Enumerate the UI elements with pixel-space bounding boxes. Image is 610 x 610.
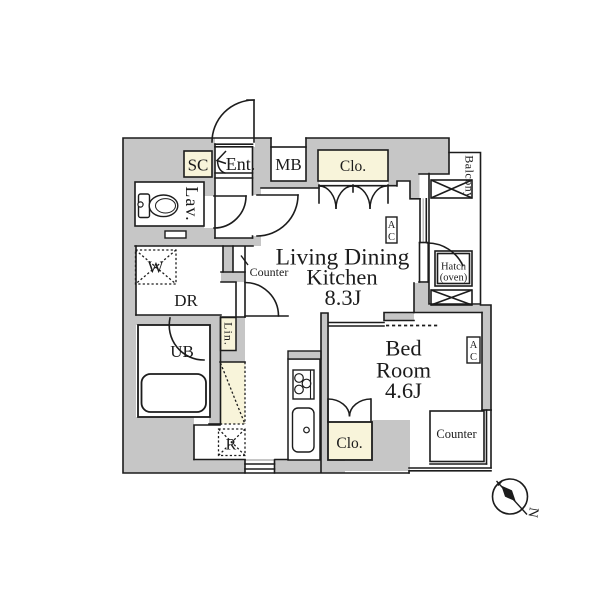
svg-text:Counter: Counter (250, 265, 289, 279)
svg-text:Lin.: Lin. (222, 322, 236, 346)
svg-text:UB: UB (170, 342, 194, 361)
svg-text:Lav.: Lav. (182, 186, 202, 221)
svg-text:SC: SC (188, 156, 209, 175)
svg-text:A: A (470, 340, 478, 351)
svg-text:8.3J: 8.3J (325, 285, 362, 310)
svg-text:C: C (470, 352, 477, 363)
svg-text:Counter: Counter (436, 427, 477, 441)
svg-text:Clo.: Clo. (340, 158, 366, 175)
svg-text:C: C (388, 232, 395, 243)
svg-text:Hatch: Hatch (441, 262, 467, 273)
svg-text:W: W (147, 258, 164, 277)
svg-text:R: R (226, 437, 237, 454)
svg-text:Ent.: Ent. (226, 154, 256, 174)
svg-text:(oven): (oven) (440, 273, 468, 284)
svg-text:A: A (388, 220, 396, 231)
svg-text:4.6J: 4.6J (385, 378, 422, 403)
svg-text:DR: DR (174, 291, 198, 310)
svg-text:Clo.: Clo. (336, 435, 362, 452)
svg-text:Balcony: Balcony (463, 155, 477, 199)
svg-text:MB: MB (275, 155, 301, 174)
